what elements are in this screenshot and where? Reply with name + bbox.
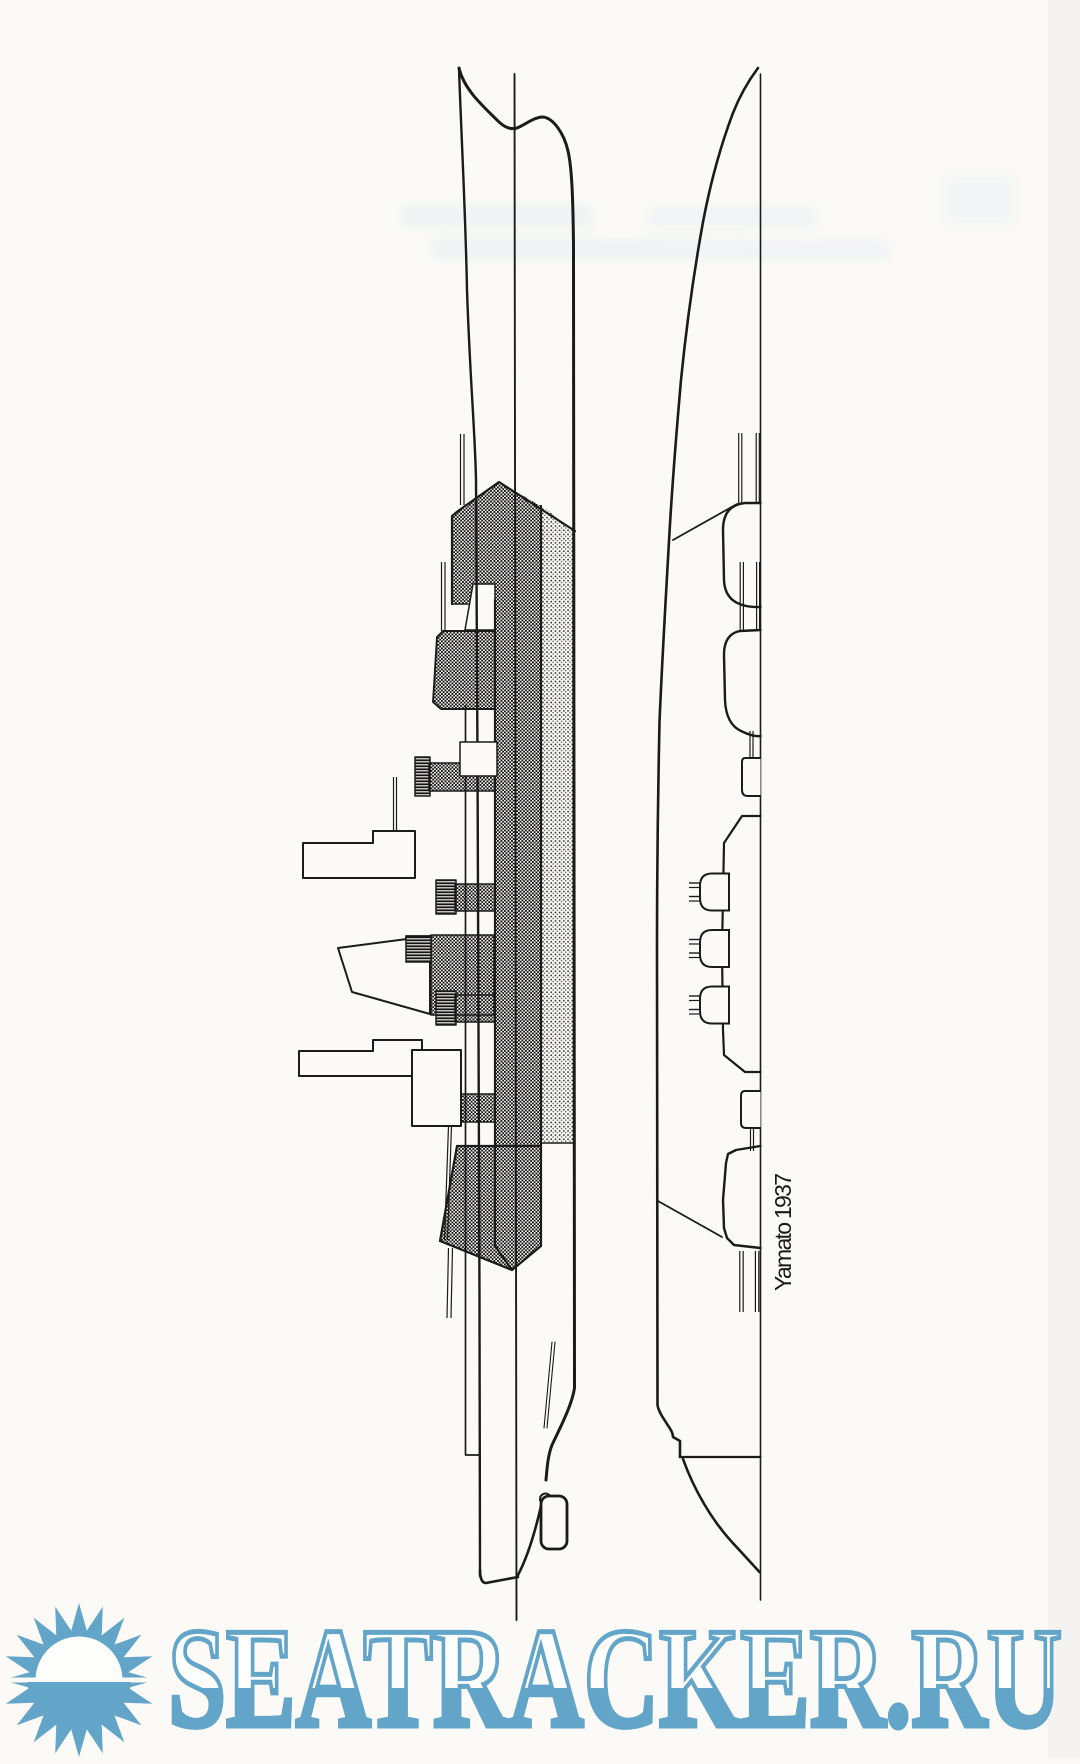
svg-text:Yamato 1937: Yamato 1937 xyxy=(770,1173,796,1291)
